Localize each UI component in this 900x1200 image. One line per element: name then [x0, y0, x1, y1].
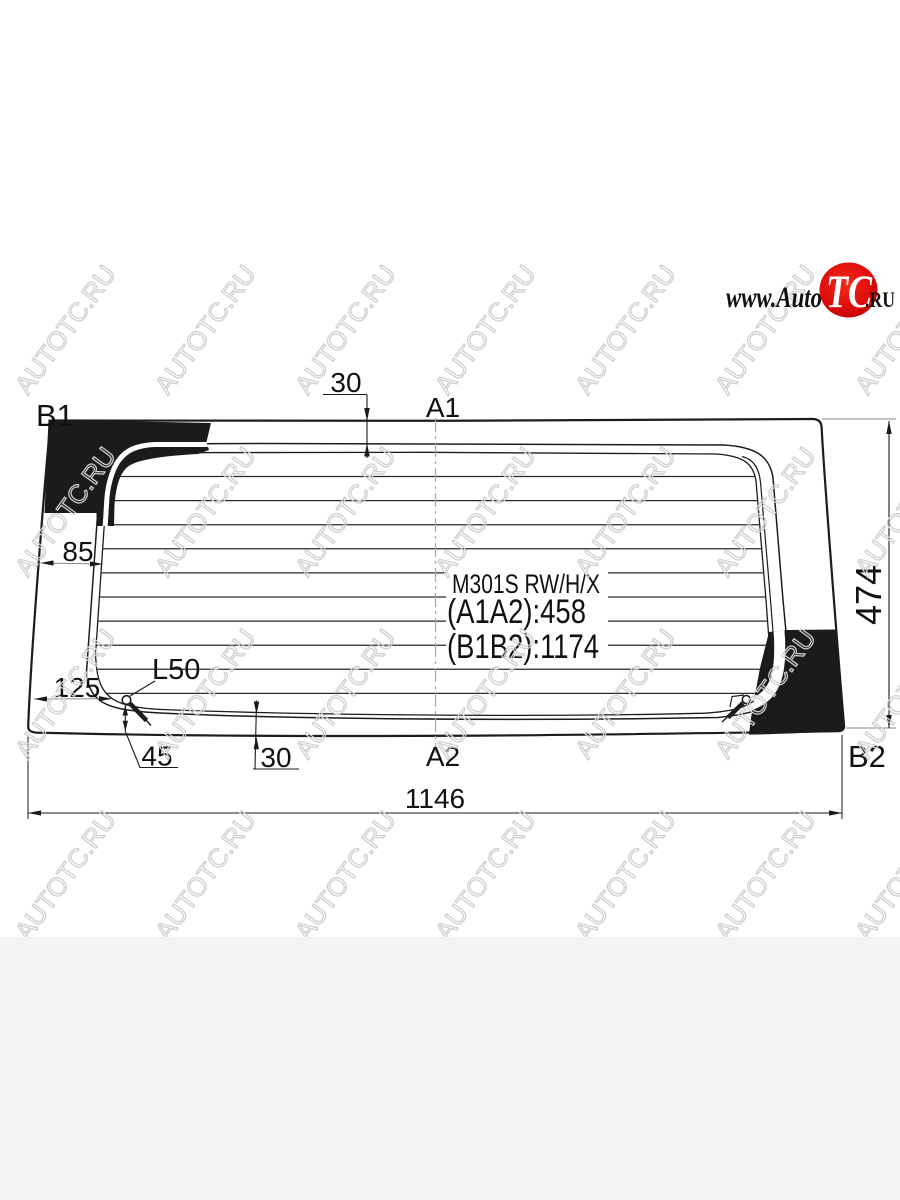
svg-text:85: 85: [62, 536, 93, 567]
svg-text:L50: L50: [152, 654, 200, 686]
svg-text:A1: A1: [426, 392, 460, 423]
svg-text:B1: B1: [36, 398, 74, 433]
svg-text:1146: 1146: [405, 783, 465, 814]
svg-text:.RU: .RU: [865, 287, 895, 312]
svg-text:30: 30: [260, 742, 291, 773]
svg-text:www.Auto: www.Auto: [726, 281, 822, 314]
svg-text:30: 30: [330, 367, 361, 398]
